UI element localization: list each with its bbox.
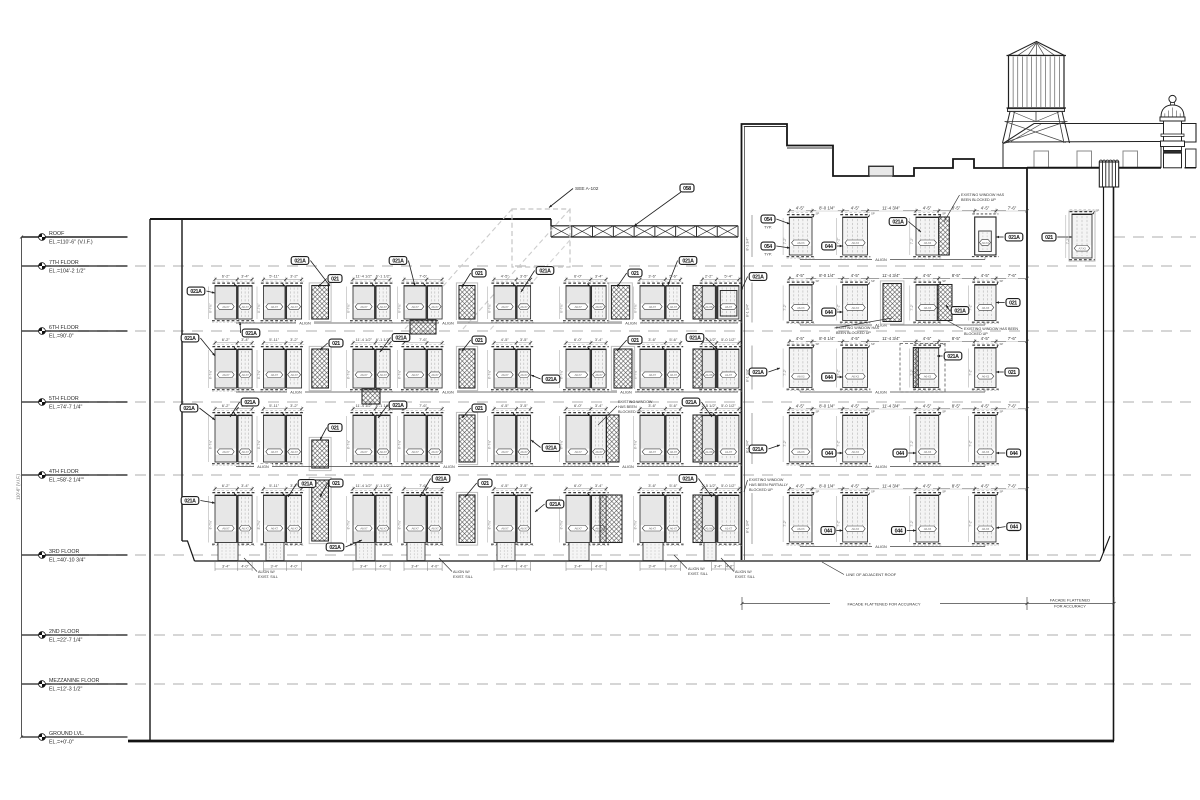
svg-text:SP: SP xyxy=(1000,342,1004,346)
svg-text:7'-2": 7'-2" xyxy=(910,237,914,244)
svg-text:4'-0": 4'-0" xyxy=(431,565,439,569)
svg-text:A6-X7: A6-X7 xyxy=(360,373,368,377)
svg-text:3'-4": 3'-4" xyxy=(648,565,656,569)
svg-text:ROOF: ROOF xyxy=(49,231,65,237)
svg-text:5'-4": 5'-4" xyxy=(724,274,733,279)
svg-text:ALIGN: ALIGN xyxy=(257,465,269,469)
svg-text:6'-1 1/2": 6'-1 1/2" xyxy=(376,274,391,279)
svg-text:3'-4": 3'-4" xyxy=(595,337,604,342)
svg-text:A6-X7: A6-X7 xyxy=(520,450,528,454)
svg-text:SP: SP xyxy=(942,212,946,216)
svg-text:4'-5": 4'-5" xyxy=(981,336,990,341)
svg-text:8'-7¾": 8'-7¾" xyxy=(398,369,402,379)
svg-text:A6-X7: A6-X7 xyxy=(360,527,368,531)
svg-text:TYP.: TYP. xyxy=(764,226,772,230)
svg-text:4TH FLOOR: 4TH FLOOR xyxy=(49,469,79,475)
svg-text:A6-X7: A6-X7 xyxy=(380,373,388,377)
svg-text:SP: SP xyxy=(871,490,875,494)
svg-text:ALIGN: ALIGN xyxy=(442,391,454,395)
svg-text:3'-2": 3'-2" xyxy=(290,274,299,279)
svg-text:FACADE FLATTENED: FACADE FLATTENED xyxy=(1050,598,1090,603)
svg-text:3'-2": 3'-2" xyxy=(290,337,299,342)
svg-text:ALIGN W/: ALIGN W/ xyxy=(258,570,276,574)
svg-text:7'-2": 7'-2" xyxy=(910,303,914,310)
svg-text:3'-4": 3'-4" xyxy=(411,565,419,569)
svg-text:4'-5": 4'-5" xyxy=(851,336,860,341)
svg-text:4'-5": 4'-5" xyxy=(923,336,932,341)
svg-text:3'-4": 3'-4" xyxy=(222,565,230,569)
svg-text:A6-X7: A6-X7 xyxy=(595,373,603,377)
svg-text:044: 044 xyxy=(825,451,833,457)
svg-text:EL.=22'-7 1/4": EL.=22'-7 1/4" xyxy=(49,638,82,644)
svg-text:8'-1 3/4": 8'-1 3/4" xyxy=(746,519,750,533)
svg-text:7'-2": 7'-2" xyxy=(969,519,973,526)
svg-text:SP: SP xyxy=(816,279,820,283)
svg-text:A6-X7: A6-X7 xyxy=(649,527,657,531)
svg-text:5'-6": 5'-6" xyxy=(669,337,678,342)
svg-text:021A: 021A xyxy=(392,403,404,409)
svg-text:A6-X7: A6-X7 xyxy=(501,527,509,531)
svg-text:ALIGN: ALIGN xyxy=(299,322,311,326)
svg-text:A6-X3: A6-X3 xyxy=(797,241,805,245)
svg-text:021: 021 xyxy=(475,338,483,344)
svg-text:SP: SP xyxy=(942,410,946,414)
svg-text:A1-X7: A1-X7 xyxy=(725,450,733,454)
svg-text:054: 054 xyxy=(764,217,772,223)
svg-text:3'-5": 3'-5" xyxy=(520,483,529,488)
svg-text:6'-0": 6'-0" xyxy=(574,337,583,342)
svg-text:8'-7¾": 8'-7¾" xyxy=(398,303,402,313)
svg-text:SP: SP xyxy=(871,212,875,216)
svg-text:SP: SP xyxy=(942,490,946,494)
svg-text:021A: 021A xyxy=(329,545,341,551)
svg-text:044: 044 xyxy=(825,310,833,316)
svg-text:4'-0": 4'-0" xyxy=(379,565,387,569)
svg-text:A6-X3: A6-X3 xyxy=(797,450,805,454)
svg-text:044: 044 xyxy=(824,529,832,535)
svg-text:3'-4": 3'-4" xyxy=(501,565,509,569)
svg-text:3'-4": 3'-4" xyxy=(241,274,250,279)
svg-text:021: 021 xyxy=(1045,235,1053,241)
svg-text:5'-11": 5'-11" xyxy=(269,274,279,279)
svg-text:A6-X7: A6-X7 xyxy=(291,373,299,377)
svg-text:7'-6": 7'-6" xyxy=(1008,273,1017,278)
svg-text:8'-7¾": 8'-7¾" xyxy=(696,519,700,529)
svg-text:8'-0 1/4": 8'-0 1/4" xyxy=(819,403,835,408)
svg-text:3'-5": 3'-5" xyxy=(520,403,529,408)
svg-text:A6-X7: A6-X7 xyxy=(431,527,439,531)
svg-text:ALIGN: ALIGN xyxy=(875,258,887,262)
svg-text:4'-0": 4'-0" xyxy=(670,565,678,569)
svg-text:021: 021 xyxy=(1008,370,1016,376)
svg-text:A6-X7: A6-X7 xyxy=(670,527,678,531)
svg-text:4'-5": 4'-5" xyxy=(923,273,932,278)
svg-text:021: 021 xyxy=(475,271,483,277)
svg-text:021A: 021A xyxy=(685,400,697,406)
svg-text:SP: SP xyxy=(942,342,946,346)
svg-text:8'-7¾": 8'-7¾" xyxy=(257,303,261,313)
svg-text:EXISTING WINDOW: EXISTING WINDOW xyxy=(749,478,784,482)
svg-text:A6-X3: A6-X3 xyxy=(982,375,990,379)
svg-text:7TH FLOOR: 7TH FLOOR xyxy=(49,260,79,266)
svg-text:4'-5": 4'-5" xyxy=(981,205,990,210)
svg-text:021: 021 xyxy=(331,277,339,283)
svg-text:8'-7¾": 8'-7¾" xyxy=(696,369,700,379)
svg-text:7'-6": 7'-6" xyxy=(1008,205,1017,210)
svg-text:8'-7¾": 8'-7¾" xyxy=(347,439,351,449)
svg-text:3'-4": 3'-4" xyxy=(595,274,604,279)
svg-text:4'-5": 4'-5" xyxy=(501,337,510,342)
svg-text:4'-5": 4'-5" xyxy=(923,403,932,408)
svg-text:A6-X7: A6-X7 xyxy=(411,450,419,454)
svg-text:ALIGN: ALIGN xyxy=(622,465,634,469)
svg-text:ALIGN W/: ALIGN W/ xyxy=(735,570,753,574)
svg-text:7'-2": 7'-2" xyxy=(783,237,787,244)
svg-text:021A: 021A xyxy=(545,446,557,452)
svg-text:11'-4 1/2": 11'-4 1/2" xyxy=(355,274,372,279)
svg-text:8'-7¾": 8'-7¾" xyxy=(634,519,638,529)
svg-text:7'-2": 7'-2" xyxy=(910,519,914,526)
svg-text:EL.=58'-2 1/4"": EL.=58'-2 1/4"" xyxy=(49,478,84,484)
svg-text:A6-X3: A6-X3 xyxy=(797,527,805,531)
svg-text:ALIGN: ALIGN xyxy=(625,322,637,326)
svg-text:A6-X7: A6-X7 xyxy=(574,305,582,309)
svg-text:7'-2": 7'-2" xyxy=(783,519,787,526)
svg-text:BLOCKED UP: BLOCKED UP xyxy=(749,488,773,492)
svg-text:021A: 021A xyxy=(183,406,195,412)
svg-text:021A: 021A xyxy=(1008,235,1020,241)
svg-text:A6-X7: A6-X7 xyxy=(501,450,509,454)
svg-text:021A: 021A xyxy=(395,336,407,342)
svg-text:4'-0": 4'-0" xyxy=(520,565,528,569)
svg-text:3'-4": 3'-4" xyxy=(241,483,250,488)
svg-text:3RD FLOOR: 3RD FLOOR xyxy=(49,549,79,555)
svg-text:8'-7¾": 8'-7¾" xyxy=(488,369,492,379)
svg-text:EXIST. SILL: EXIST. SILL xyxy=(688,572,708,576)
svg-text:2ND FLOOR: 2ND FLOOR xyxy=(49,629,79,635)
svg-text:6'-2": 6'-2" xyxy=(222,483,231,488)
svg-text:A6-X7: A6-X7 xyxy=(411,373,419,377)
svg-text:A6-X7: A6-X7 xyxy=(520,305,528,309)
svg-text:021A: 021A xyxy=(689,336,701,342)
svg-text:7'-6": 7'-6" xyxy=(419,403,428,408)
svg-text:4'-5": 4'-5" xyxy=(851,205,860,210)
svg-text:A6-X7: A6-X7 xyxy=(271,527,279,531)
svg-text:A6-X7: A6-X7 xyxy=(380,450,388,454)
svg-text:7'-2": 7'-2" xyxy=(1066,237,1070,244)
svg-text:4'-5": 4'-5" xyxy=(501,483,510,488)
svg-text:4'-5": 4'-5" xyxy=(981,483,990,488)
svg-text:4'-0": 4'-0" xyxy=(290,565,298,569)
svg-text:044: 044 xyxy=(1010,525,1018,531)
svg-text:A6-X7: A6-X7 xyxy=(595,450,603,454)
svg-text:8'-1 3/4": 8'-1 3/4" xyxy=(746,303,750,317)
svg-text:A6-X7: A6-X7 xyxy=(574,527,582,531)
svg-text:021A: 021A xyxy=(294,259,306,265)
svg-text:8'-7¾": 8'-7¾" xyxy=(634,303,638,313)
svg-text:110'-6" (V.I.F.): 110'-6" (V.I.F.) xyxy=(16,474,21,500)
svg-text:4'-0": 4'-0" xyxy=(726,565,734,569)
svg-text:A6-X3: A6-X3 xyxy=(982,306,990,310)
svg-text:A6-X7: A6-X7 xyxy=(291,305,299,309)
svg-text:021: 021 xyxy=(332,341,340,347)
svg-text:5'-6": 5'-6" xyxy=(669,403,678,408)
svg-text:A6-X7: A6-X7 xyxy=(501,305,509,309)
svg-text:8'-7¾": 8'-7¾" xyxy=(488,519,492,529)
svg-text:3'-5": 3'-5" xyxy=(520,337,529,342)
svg-text:6'-2": 6'-2" xyxy=(222,274,231,279)
svg-text:8'-7¾": 8'-7¾" xyxy=(560,303,564,313)
svg-text:SP: SP xyxy=(816,410,820,414)
svg-text:8'-7¾": 8'-7¾" xyxy=(257,519,261,529)
svg-text:ALIGN: ALIGN xyxy=(290,391,302,395)
svg-text:A6-X7: A6-X7 xyxy=(670,373,678,377)
svg-text:SP: SP xyxy=(871,410,875,414)
svg-text:044: 044 xyxy=(825,375,833,381)
svg-text:HAS BEEN PARTIALLY: HAS BEEN PARTIALLY xyxy=(749,483,788,487)
svg-text:021A: 021A xyxy=(392,259,404,265)
svg-text:SP: SP xyxy=(1000,279,1004,283)
svg-text:3'-6": 3'-6" xyxy=(648,337,657,342)
svg-text:A6-X3: A6-X3 xyxy=(982,527,990,531)
svg-text:A6-X7: A6-X7 xyxy=(291,527,299,531)
svg-text:7'-2": 7'-2" xyxy=(837,237,841,244)
svg-text:021A: 021A xyxy=(682,259,694,265)
svg-text:2'-2": 2'-2" xyxy=(705,274,714,279)
svg-text:3'-4": 3'-4" xyxy=(595,483,604,488)
svg-text:SP: SP xyxy=(871,342,875,346)
svg-text:8'-7¾": 8'-7¾" xyxy=(488,303,492,313)
svg-text:7'-6": 7'-6" xyxy=(419,274,428,279)
svg-text:A6-X7: A6-X7 xyxy=(271,450,279,454)
svg-text:A6-X7: A6-X7 xyxy=(670,450,678,454)
svg-text:ALIGN W/: ALIGN W/ xyxy=(688,567,706,571)
svg-text:ALIGN: ALIGN xyxy=(443,465,455,469)
svg-text:A6-X3: A6-X3 xyxy=(852,527,860,531)
svg-text:4'-0": 4'-0" xyxy=(595,565,603,569)
svg-text:6'-2": 6'-2" xyxy=(222,403,231,408)
svg-text:A1-X7: A1-X7 xyxy=(725,527,733,531)
svg-text:7'-6": 7'-6" xyxy=(1008,336,1017,341)
svg-text:11'-4 3/4": 11'-4 3/4" xyxy=(882,205,900,210)
svg-text:11'-4 3/4": 11'-4 3/4" xyxy=(882,273,900,278)
svg-text:044: 044 xyxy=(895,529,903,535)
svg-text:4'-5": 4'-5" xyxy=(851,483,860,488)
svg-text:4'-5": 4'-5" xyxy=(923,483,932,488)
svg-text:3'-4": 3'-4" xyxy=(714,565,722,569)
svg-text:021A: 021A xyxy=(301,482,313,488)
svg-text:A6-X7: A6-X7 xyxy=(222,373,230,377)
svg-text:A1-X8: A1-X8 xyxy=(705,373,713,377)
svg-text:5'-0 1/2": 5'-0 1/2" xyxy=(721,337,736,342)
svg-text:A6-X7: A6-X7 xyxy=(222,450,230,454)
svg-text:021A: 021A xyxy=(545,377,557,383)
svg-text:3'-4": 3'-4" xyxy=(595,403,604,408)
svg-text:EL.=+0'-0": EL.=+0'-0" xyxy=(49,740,74,746)
svg-text:EL.=110'-6" (V.I.F.): EL.=110'-6" (V.I.F.) xyxy=(49,240,93,246)
svg-text:6'-2": 6'-2" xyxy=(222,337,231,342)
svg-text:BLOCKED UP: BLOCKED UP xyxy=(618,410,642,414)
svg-text:8'-7¾": 8'-7¾" xyxy=(696,303,700,313)
svg-text:021A: 021A xyxy=(245,331,257,337)
svg-text:8'-7¾": 8'-7¾" xyxy=(209,369,213,379)
svg-text:7'-2": 7'-2" xyxy=(783,303,787,310)
svg-text:5TH FLOOR: 5TH FLOOR xyxy=(49,396,79,402)
svg-text:A6-X7: A6-X7 xyxy=(520,527,528,531)
svg-text:11'-4 3/4": 11'-4 3/4" xyxy=(882,483,900,488)
svg-text:021: 021 xyxy=(631,271,639,277)
svg-text:A6-X3: A6-X3 xyxy=(852,241,860,245)
svg-text:3'-6": 3'-6" xyxy=(648,483,657,488)
svg-text:5'-6": 5'-6" xyxy=(669,483,678,488)
svg-text:ALIGN: ALIGN xyxy=(875,391,887,395)
svg-text:021A: 021A xyxy=(947,354,959,360)
svg-text:A6-X7: A6-X7 xyxy=(725,305,733,309)
svg-text:ALIGN: ALIGN xyxy=(875,465,887,469)
svg-text:A6-X7: A6-X7 xyxy=(222,305,230,309)
svg-text:4'-5": 4'-5" xyxy=(501,274,510,279)
svg-text:5'-11": 5'-11" xyxy=(269,483,279,488)
svg-text:A6-X7: A6-X7 xyxy=(431,450,439,454)
svg-text:SP: SP xyxy=(942,279,946,283)
svg-text:A6-X3: A6-X3 xyxy=(797,306,805,310)
svg-text:021: 021 xyxy=(481,481,489,487)
svg-text:8'-7¾": 8'-7¾" xyxy=(347,303,351,313)
svg-text:7'-2": 7'-2" xyxy=(837,368,841,375)
svg-text:8'-5": 8'-5" xyxy=(952,273,961,278)
svg-text:A6-X7: A6-X7 xyxy=(242,450,250,454)
svg-text:8'-0 1/4": 8'-0 1/4" xyxy=(819,273,835,278)
svg-text:058: 058 xyxy=(683,186,691,192)
svg-text:021A: 021A xyxy=(752,275,764,281)
svg-text:A6-X7: A6-X7 xyxy=(291,450,299,454)
svg-text:4'-5": 4'-5" xyxy=(796,205,805,210)
svg-text:A6-X3: A6-X3 xyxy=(981,241,989,245)
svg-text:3'-4": 3'-4" xyxy=(241,337,250,342)
svg-text:021: 021 xyxy=(332,481,340,487)
svg-text:021A: 021A xyxy=(682,477,694,483)
svg-text:4'-0": 4'-0" xyxy=(241,565,249,569)
svg-text:4'-5": 4'-5" xyxy=(796,273,805,278)
svg-text:7'-2": 7'-2" xyxy=(969,439,973,446)
svg-text:A6-X3: A6-X3 xyxy=(797,375,805,379)
svg-text:A6-X7: A6-X7 xyxy=(271,373,279,377)
svg-text:8'-7¾": 8'-7¾" xyxy=(398,439,402,449)
svg-text:044: 044 xyxy=(896,451,904,457)
svg-text:3'-4": 3'-4" xyxy=(574,565,582,569)
svg-text:11'-4 3/4": 11'-4 3/4" xyxy=(882,403,900,408)
svg-text:EXIST. SILL: EXIST. SILL xyxy=(735,575,755,579)
svg-text:7'-2": 7'-2" xyxy=(837,303,841,310)
svg-text:SP: SP xyxy=(816,212,820,216)
svg-text:SP: SP xyxy=(871,279,875,283)
svg-text:A6-X7: A6-X7 xyxy=(242,527,250,531)
svg-text:021A: 021A xyxy=(244,400,256,406)
svg-text:SP: SP xyxy=(816,490,820,494)
svg-text:021A: 021A xyxy=(184,499,196,505)
svg-text:4'-5": 4'-5" xyxy=(981,273,990,278)
svg-text:021A: 021A xyxy=(549,502,561,508)
svg-text:4'-5": 4'-5" xyxy=(981,403,990,408)
svg-text:5'-11": 5'-11" xyxy=(269,337,279,342)
svg-text:A6-X7: A6-X7 xyxy=(501,373,509,377)
svg-text:EL.=74'-7 1/4": EL.=74'-7 1/4" xyxy=(49,405,82,411)
svg-text:044: 044 xyxy=(825,244,833,250)
svg-text:A6-X3: A6-X3 xyxy=(924,241,932,245)
svg-text:A6-X3: A6-X3 xyxy=(924,306,932,310)
svg-text:A6-X7: A6-X7 xyxy=(649,450,657,454)
svg-text:4'-5": 4'-5" xyxy=(796,483,805,488)
svg-text:054: 054 xyxy=(764,244,772,250)
svg-text:A6-X7: A6-X7 xyxy=(431,305,439,309)
svg-text:SP: SP xyxy=(816,342,820,346)
svg-text:3'-2": 3'-2" xyxy=(290,403,299,408)
svg-text:ALIGN: ALIGN xyxy=(620,391,632,395)
svg-text:A6-X7: A6-X7 xyxy=(574,373,582,377)
svg-text:8'-7¾": 8'-7¾" xyxy=(347,369,351,379)
svg-text:021: 021 xyxy=(631,338,639,344)
svg-text:021: 021 xyxy=(475,406,483,412)
svg-text:11'-4 1/2": 11'-4 1/2" xyxy=(355,337,372,342)
svg-text:021A: 021A xyxy=(752,447,764,453)
svg-text:A6-X3: A6-X3 xyxy=(852,375,860,379)
svg-text:021A: 021A xyxy=(190,289,202,295)
svg-text:6'-0": 6'-0" xyxy=(574,483,583,488)
svg-text:8'-7¾": 8'-7¾" xyxy=(257,369,261,379)
svg-text:BLOCKED UP: BLOCKED UP xyxy=(964,332,988,336)
svg-text:8'-7¾": 8'-7¾" xyxy=(257,439,261,449)
svg-text:7'-2": 7'-2" xyxy=(783,439,787,446)
svg-text:4'-5": 4'-5" xyxy=(851,403,860,408)
svg-text:7'-2": 7'-2" xyxy=(910,439,914,446)
svg-text:021A: 021A xyxy=(752,370,764,376)
svg-text:3'-4": 3'-4" xyxy=(360,565,368,569)
svg-text:A6-X7: A6-X7 xyxy=(595,305,603,309)
svg-text:11'-4 3/4": 11'-4 3/4" xyxy=(882,336,900,341)
svg-text:7'-2": 7'-2" xyxy=(837,439,841,446)
svg-text:GROUND LVL.: GROUND LVL. xyxy=(49,731,85,737)
svg-text:8'-7¾": 8'-7¾" xyxy=(634,439,638,449)
svg-text:7'-6": 7'-6" xyxy=(1008,403,1017,408)
svg-text:LINE OF ADJACENT ROOF: LINE OF ADJACENT ROOF xyxy=(846,572,897,577)
svg-text:021A: 021A xyxy=(184,336,196,342)
svg-text:8'-7¾": 8'-7¾" xyxy=(398,519,402,529)
svg-text:EL.=40'-10 3/4": EL.=40'-10 3/4" xyxy=(49,558,85,564)
svg-text:4'-5": 4'-5" xyxy=(851,273,860,278)
svg-text:A6-X7: A6-X7 xyxy=(271,305,279,309)
svg-text:7'-6": 7'-6" xyxy=(1008,483,1017,488)
svg-text:EL.=12'-3 1/2": EL.=12'-3 1/2" xyxy=(49,687,82,693)
svg-text:5'-0 1/2": 5'-0 1/2" xyxy=(721,483,736,488)
svg-text:021A: 021A xyxy=(954,309,966,315)
svg-text:3'-6": 3'-6" xyxy=(648,274,657,279)
svg-text:A6-X7: A6-X7 xyxy=(380,305,388,309)
svg-text:021A: 021A xyxy=(892,220,904,226)
svg-text:8'-0 1/4": 8'-0 1/4" xyxy=(819,483,835,488)
svg-text:ALIGN W/: ALIGN W/ xyxy=(453,570,471,574)
svg-text:A1-X7: A1-X7 xyxy=(725,373,733,377)
svg-text:A1-X8: A1-X8 xyxy=(705,527,713,531)
svg-text:FOR ACCURACY: FOR ACCURACY xyxy=(1054,604,1086,609)
svg-text:8'-5": 8'-5" xyxy=(952,336,961,341)
svg-text:A6-X7: A6-X7 xyxy=(380,527,388,531)
svg-text:EXISTING WINDOW HAS: EXISTING WINDOW HAS xyxy=(961,193,1005,197)
svg-text:4'-5": 4'-5" xyxy=(796,403,805,408)
svg-text:4'-5": 4'-5" xyxy=(923,205,932,210)
svg-text:EXIST. SILL: EXIST. SILL xyxy=(453,575,473,579)
svg-text:BEEN BLOCKED UP: BEEN BLOCKED UP xyxy=(836,331,871,335)
svg-text:TYP.: TYP. xyxy=(764,253,772,257)
